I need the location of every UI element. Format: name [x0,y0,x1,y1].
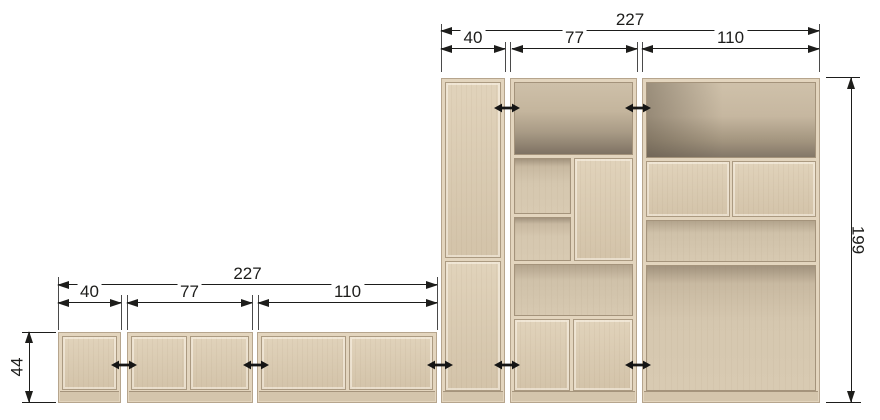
tick-line [826,402,861,403]
arrowhead-left-icon [57,299,69,307]
dimension-bottom-seg1: 40 [58,283,121,303]
cabinet-door [261,336,346,390]
double-arrow-icon [625,103,651,113]
dimension-line [642,48,819,50]
tall-cabinet-77 [510,78,637,403]
dimension-top-total: 227 [441,11,819,31]
arrowhead-down-icon [847,391,855,403]
plinth [512,391,635,401]
open-compartment [646,265,816,391]
dimension-top-seg3: 110 [642,29,819,49]
cabinet-door [514,319,570,391]
dimension-top-seg1: 40 [441,29,505,49]
dimension-tall-height: 199 [845,78,857,402]
dimension-line [127,302,252,304]
open-shelf [514,158,571,214]
cabinet-door [190,336,249,390]
arrowhead-right-icon [241,299,253,307]
double-arrow-icon [494,360,520,370]
dimension-line [512,48,637,50]
dimension-label-top-seg1: 40 [461,29,486,46]
cabinet-door [349,336,433,390]
cabinet-door [732,161,816,217]
open-shelf [646,220,816,262]
arrowhead-right-icon [494,45,506,53]
double-arrow-icon [427,360,453,370]
dimension-label-top-total: 227 [613,11,647,28]
open-shelf [514,217,571,261]
plinth [60,391,119,401]
cabinet-dimension-diagram: 227 40 77 110 [0,0,880,420]
arrowhead-right-icon [626,45,638,53]
cabinet-door [646,161,730,217]
dimension-label-top-seg3: 110 [714,29,747,46]
arrowhead-left-icon [511,45,523,53]
dimension-label-tall-height: 199 [850,226,867,254]
dimension-bottom-total: 227 [58,265,437,285]
dimension-low-height: 44 [23,332,35,402]
cabinet-door [445,82,501,258]
cabinet-door [573,319,633,391]
arrowhead-up-icon [25,331,33,343]
dimension-label-bottom-seg2: 77 [177,283,202,300]
cabinet-door [62,336,117,390]
open-compartment [514,82,633,155]
dimension-label-low-height: 44 [9,358,26,377]
dimension-label-bottom-seg3: 110 [331,283,364,300]
arrowhead-down-icon [25,391,33,403]
dimension-top-seg2: 77 [512,29,637,49]
arrowhead-right-icon [110,299,122,307]
low-cabinet-110 [257,332,437,403]
dimension-label-bottom-seg1: 40 [77,283,102,300]
dimension-bottom-seg3: 110 [258,283,437,303]
plinth [443,391,503,401]
double-arrow-icon [111,360,137,370]
arrowhead-left-icon [126,299,138,307]
plinth [644,391,818,401]
dimension-line [258,302,437,304]
open-compartment [646,82,816,158]
low-cabinet-77 [127,332,253,403]
dimension-label-bottom-total: 227 [230,265,264,282]
cabinet-door [131,336,187,390]
open-compartment [514,264,633,316]
arrowhead-left-icon [257,299,269,307]
tall-cabinet-40 [441,78,505,403]
arrowhead-right-icon [426,299,438,307]
double-arrow-icon [243,360,269,370]
dimension-bottom-seg2: 77 [127,283,252,303]
cabinet-door [445,261,501,391]
arrowhead-right-icon [808,45,820,53]
plinth [259,391,435,401]
arrowhead-up-icon [847,77,855,89]
double-arrow-icon [494,103,520,113]
dimension-label-top-seg2: 77 [562,29,587,46]
arrowhead-left-icon [440,45,452,53]
tall-cabinet-110 [642,78,820,403]
cabinet-door [574,158,633,261]
double-arrow-icon [625,360,651,370]
arrowhead-left-icon [641,45,653,53]
plinth [129,391,251,401]
